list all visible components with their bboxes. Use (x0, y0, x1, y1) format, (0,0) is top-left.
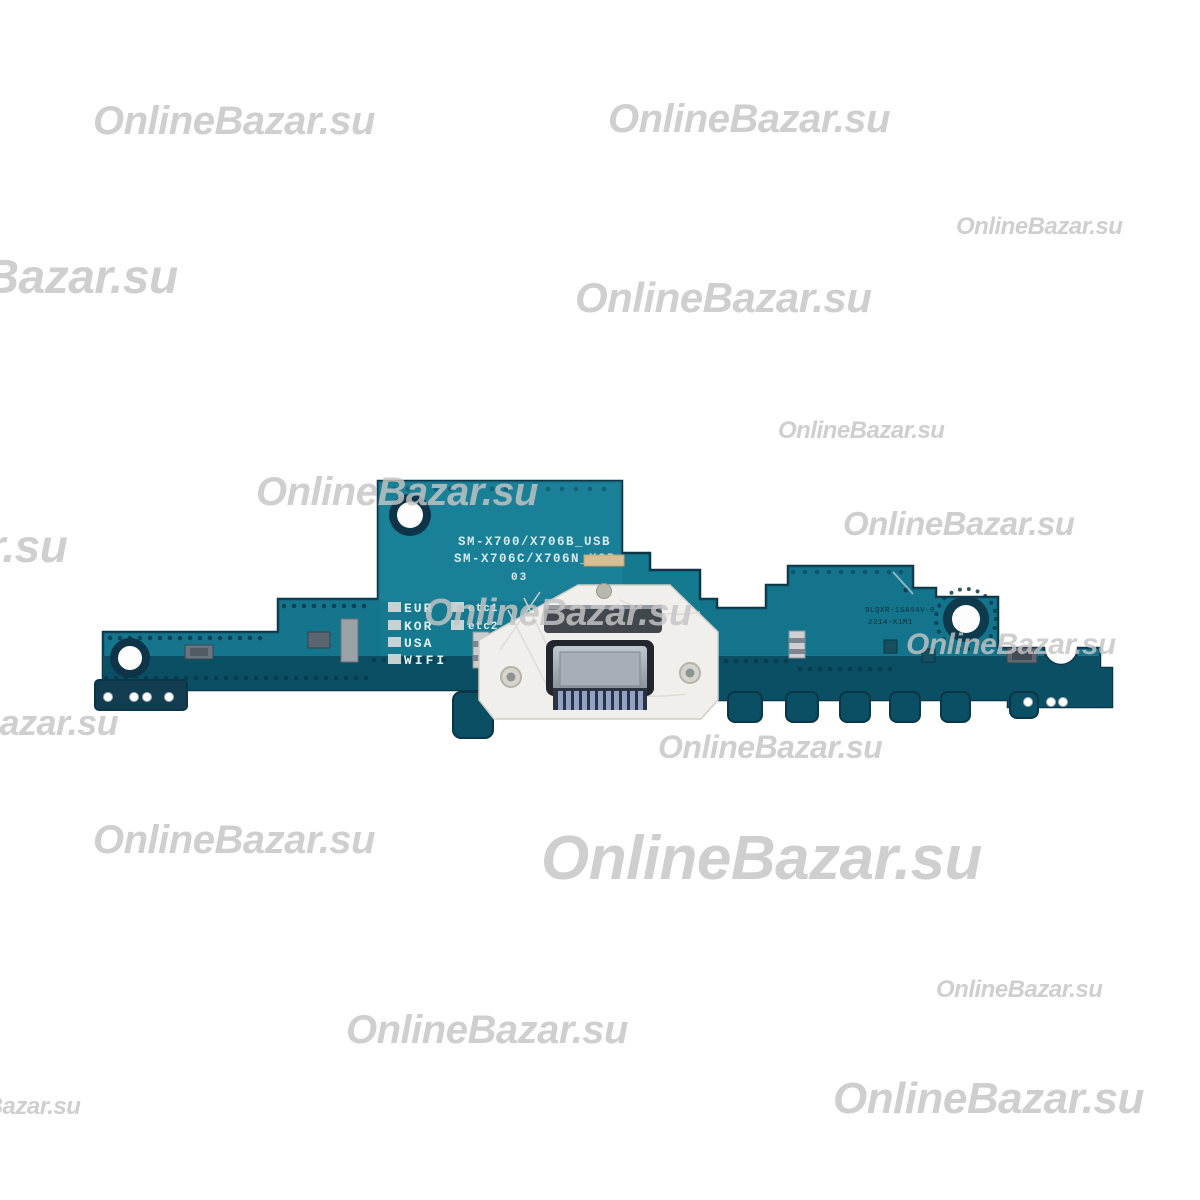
bracket-screw-eyelet-left (501, 667, 521, 687)
screw-hole-center (389, 494, 431, 536)
region-label: EUR (404, 601, 433, 616)
model-number-line1: SM-X700/X706B_USB (458, 535, 611, 549)
usb-c-connector (546, 640, 654, 710)
region-label: WIFI (404, 653, 447, 668)
solder-pad (104, 693, 113, 702)
product-photo: SM-X700/X706B_USB SM-X706C/X706N_USB 03 … (0, 0, 1200, 1200)
revision-label: 03 (511, 572, 528, 584)
charging-port-board: SM-X700/X706B_USB SM-X706C/X706N_USB 03 … (0, 0, 1200, 1200)
solder-pad (130, 693, 139, 702)
gold-flex-pad (584, 555, 624, 566)
region-label: KOR (404, 619, 433, 634)
screw-hole-right (943, 596, 989, 642)
bracket-hole (597, 584, 612, 599)
screw-hole-left (110, 638, 150, 678)
pcb-left-block (95, 680, 187, 710)
pcb-body: SM-X700/X706B_USB SM-X706C/X706N_USB 03 … (90, 481, 1120, 738)
region-suffix: etc1 (468, 603, 498, 615)
usb-pins (558, 691, 643, 710)
solder-pad (143, 693, 152, 702)
region-label: USA (404, 636, 433, 651)
board-marking-line2: 2214-K1M1 (868, 619, 913, 627)
bracket-screw-eyelet-right (680, 663, 700, 683)
solder-pad (165, 693, 174, 702)
bracket-slot (544, 609, 662, 633)
board-marking-line1: 9LQXR-1SA94V-0 (865, 607, 935, 615)
